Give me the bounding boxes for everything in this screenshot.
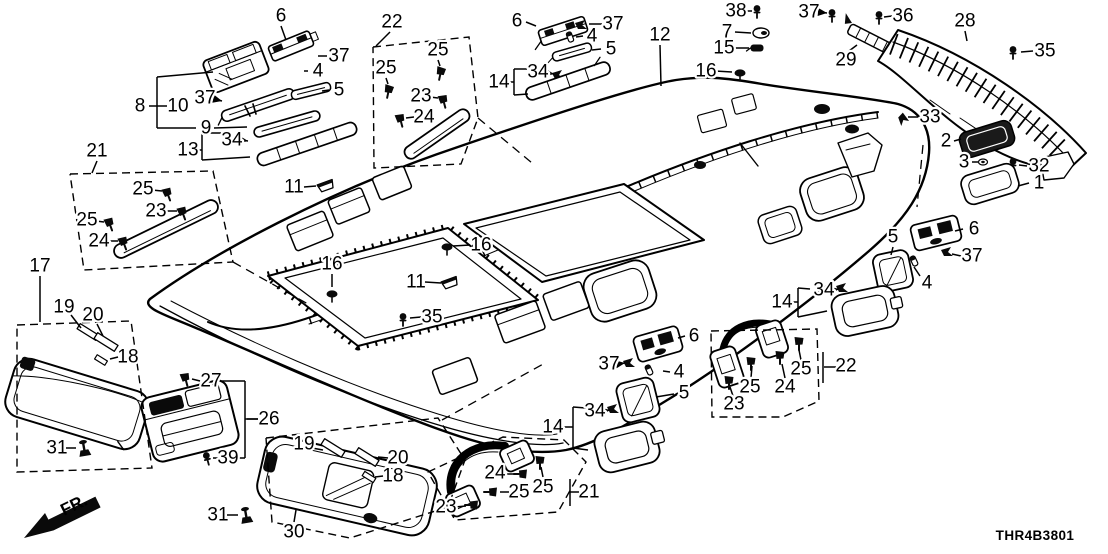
clip-25-icon <box>795 337 804 350</box>
sun-visor-right <box>254 433 441 539</box>
leader-line <box>192 379 200 381</box>
callout-label-25: 25 <box>532 477 553 498</box>
callout-label-24: 24 <box>774 377 796 398</box>
leader-line <box>376 32 390 46</box>
callout-label-39: 39 <box>217 448 238 469</box>
visor-slat-20 <box>94 333 118 352</box>
callout-label-21: 21 <box>86 141 107 162</box>
leader-line <box>884 16 892 17</box>
clip-part-15 <box>747 45 764 52</box>
clip-25-icon <box>383 84 395 99</box>
callout-label-25: 25 <box>508 482 529 503</box>
callout-label-17: 17 <box>29 256 50 277</box>
callout-label-25: 25 <box>427 40 448 61</box>
callout-label-5: 5 <box>606 39 617 60</box>
callout-label-23: 23 <box>723 394 744 415</box>
callout-label-37: 37 <box>598 354 619 375</box>
leader-line <box>281 26 286 40</box>
leader-line <box>92 161 97 173</box>
screw-38-icon <box>754 5 761 18</box>
leader-line <box>660 45 661 86</box>
callout-label-30: 30 <box>283 522 304 543</box>
callout-label-37: 37 <box>194 88 215 109</box>
screw-39-icon <box>202 451 212 465</box>
leader-line <box>386 78 388 84</box>
leader-line <box>715 71 732 72</box>
lamp-part-7 <box>753 28 769 38</box>
callout-label-22: 22 <box>381 12 402 33</box>
callout-label-4: 4 <box>587 26 598 47</box>
callout-label-26: 26 <box>258 409 279 430</box>
clip-24-icon <box>395 113 407 128</box>
bracket-line <box>202 157 250 160</box>
leader-line <box>1019 165 1027 166</box>
callout-label-10: 10 <box>167 96 188 117</box>
clip-25-icon <box>747 357 756 370</box>
callout-label-6: 6 <box>276 6 287 27</box>
callout-label-11: 11 <box>406 272 426 293</box>
leader-line <box>438 60 440 66</box>
callout-label-25: 25 <box>375 58 396 79</box>
interior-lamp-6-bottomright <box>910 215 963 252</box>
callout-label-37: 37 <box>602 14 623 35</box>
leader-line <box>453 245 470 246</box>
leader-line <box>214 127 247 128</box>
diagram-code: THR4B3801 <box>996 528 1075 543</box>
bracket-line <box>798 311 827 317</box>
lens-part-5-topcenter <box>544 42 593 64</box>
screw-35-icon <box>1010 46 1017 59</box>
callout-label-3: 3 <box>959 152 970 173</box>
callout-label-37: 37 <box>328 46 349 67</box>
dart-clip-37-icon <box>941 247 953 256</box>
callout-label-29: 29 <box>835 50 856 71</box>
clip-25-icon <box>536 456 545 469</box>
callout-label-16: 16 <box>470 235 491 256</box>
callout-label-34: 34 <box>527 62 549 83</box>
leader-line <box>425 282 441 283</box>
callout-label-14: 14 <box>542 417 564 438</box>
leader-line <box>526 22 536 26</box>
callout-label-34: 34 <box>221 130 243 151</box>
callout-label-35: 35 <box>1034 41 1055 62</box>
leader-line <box>592 49 601 50</box>
leader-line <box>914 267 920 276</box>
overhead-console-part-8 <box>202 40 270 93</box>
callout-label-15: 15 <box>713 38 734 59</box>
callout-label-5: 5 <box>679 383 690 404</box>
callout-label-18: 18 <box>117 347 138 368</box>
callout-label-13: 13 <box>177 140 198 161</box>
callout-label-31: 31 <box>207 505 228 526</box>
callout-label-35: 35 <box>421 307 442 328</box>
bracket-line <box>514 94 528 95</box>
leader-line <box>410 317 421 318</box>
lens-part-9 <box>253 110 321 138</box>
callout-label-4: 4 <box>922 273 933 294</box>
clip-24-icon <box>514 470 527 479</box>
leader-line <box>1021 51 1033 52</box>
callout-label-5: 5 <box>334 80 345 101</box>
callout-label-24: 24 <box>413 107 435 128</box>
callout-label-27: 27 <box>200 371 221 392</box>
bracket-line <box>573 448 588 450</box>
callout-label-31: 31 <box>46 438 67 459</box>
visor-clip-18 <box>95 355 108 366</box>
callout-label-16: 16 <box>695 61 716 82</box>
callout-label-20: 20 <box>82 305 103 326</box>
leader-line <box>735 32 751 33</box>
leader-line <box>952 254 961 256</box>
callout-label-12: 12 <box>649 25 670 46</box>
clip-24-icon <box>776 351 785 364</box>
callout-label-21: 21 <box>578 482 599 503</box>
parts-diagram-canvas: 6374581037934132125232524222525232463745… <box>0 0 1108 554</box>
leader-line <box>663 371 670 372</box>
leader-line <box>576 36 583 37</box>
leader-line <box>322 90 329 91</box>
callout-label-9: 9 <box>201 118 212 139</box>
callout-label-23: 23 <box>435 497 456 518</box>
callout-label-1: 1 <box>1034 173 1045 194</box>
leader-line <box>304 186 316 187</box>
callout-label-23: 23 <box>410 86 431 107</box>
clip-23-icon <box>438 94 450 109</box>
parts-diagram-page: 6374581037934132125232524222525232463745… <box>0 0 1108 554</box>
callout-label-37: 37 <box>798 2 819 23</box>
callout-label-2: 2 <box>941 131 952 152</box>
bracket-line <box>157 72 213 77</box>
leader-line <box>965 31 967 41</box>
dart-clip-34-icon <box>836 283 848 292</box>
clip-27-icon <box>180 372 192 387</box>
callout-label-19: 19 <box>53 297 74 318</box>
callout-label-6: 6 <box>512 11 523 32</box>
leader-line <box>455 506 466 507</box>
bracket-line <box>798 288 810 289</box>
callout-label-16: 16 <box>321 254 342 275</box>
callout-label-24: 24 <box>88 231 110 252</box>
screw-37-icon <box>829 9 836 22</box>
visor-pin-31-icon <box>77 439 92 457</box>
callout-label-28: 28 <box>954 11 975 32</box>
callout-label-38: 38 <box>725 1 746 22</box>
lens-5-bottomcenter <box>615 376 662 424</box>
clip-part-11 <box>317 180 335 193</box>
visor-pin-31-icon <box>239 506 254 524</box>
callout-label-5: 5 <box>888 227 899 248</box>
map-light-part-6-topleft <box>268 28 320 62</box>
sun-visor-left <box>1 355 152 453</box>
leader-line <box>294 510 296 522</box>
callout-label-18: 18 <box>382 466 403 487</box>
callout-label-4: 4 <box>674 362 685 383</box>
callout-label-25: 25 <box>132 179 153 200</box>
callout-label-19: 19 <box>293 434 314 455</box>
callout-label-36: 36 <box>892 6 913 27</box>
leader-line <box>541 467 543 477</box>
callout-label-8: 8 <box>135 96 146 117</box>
callout-label-34: 34 <box>584 401 606 422</box>
bulb-socket-part-3 <box>979 159 988 165</box>
clip-25-icon <box>484 488 497 497</box>
callout-label-14: 14 <box>771 292 793 313</box>
screw-36-icon <box>876 11 883 24</box>
callout-label-14: 14 <box>488 72 510 93</box>
callout-label-11: 11 <box>284 177 304 198</box>
callout-label-37: 37 <box>961 246 982 267</box>
callout-label-6: 6 <box>689 326 700 347</box>
callout-label-4: 4 <box>313 61 324 82</box>
callout-label-33: 33 <box>919 107 940 128</box>
callout-label-6: 6 <box>969 219 980 240</box>
callout-label-34: 34 <box>813 280 835 301</box>
clip-25-icon <box>435 66 447 81</box>
callout-label-24: 24 <box>484 463 506 484</box>
callout-label-25: 25 <box>76 210 97 231</box>
callout-label-22: 22 <box>835 356 856 377</box>
callout-label-23: 23 <box>145 201 166 222</box>
